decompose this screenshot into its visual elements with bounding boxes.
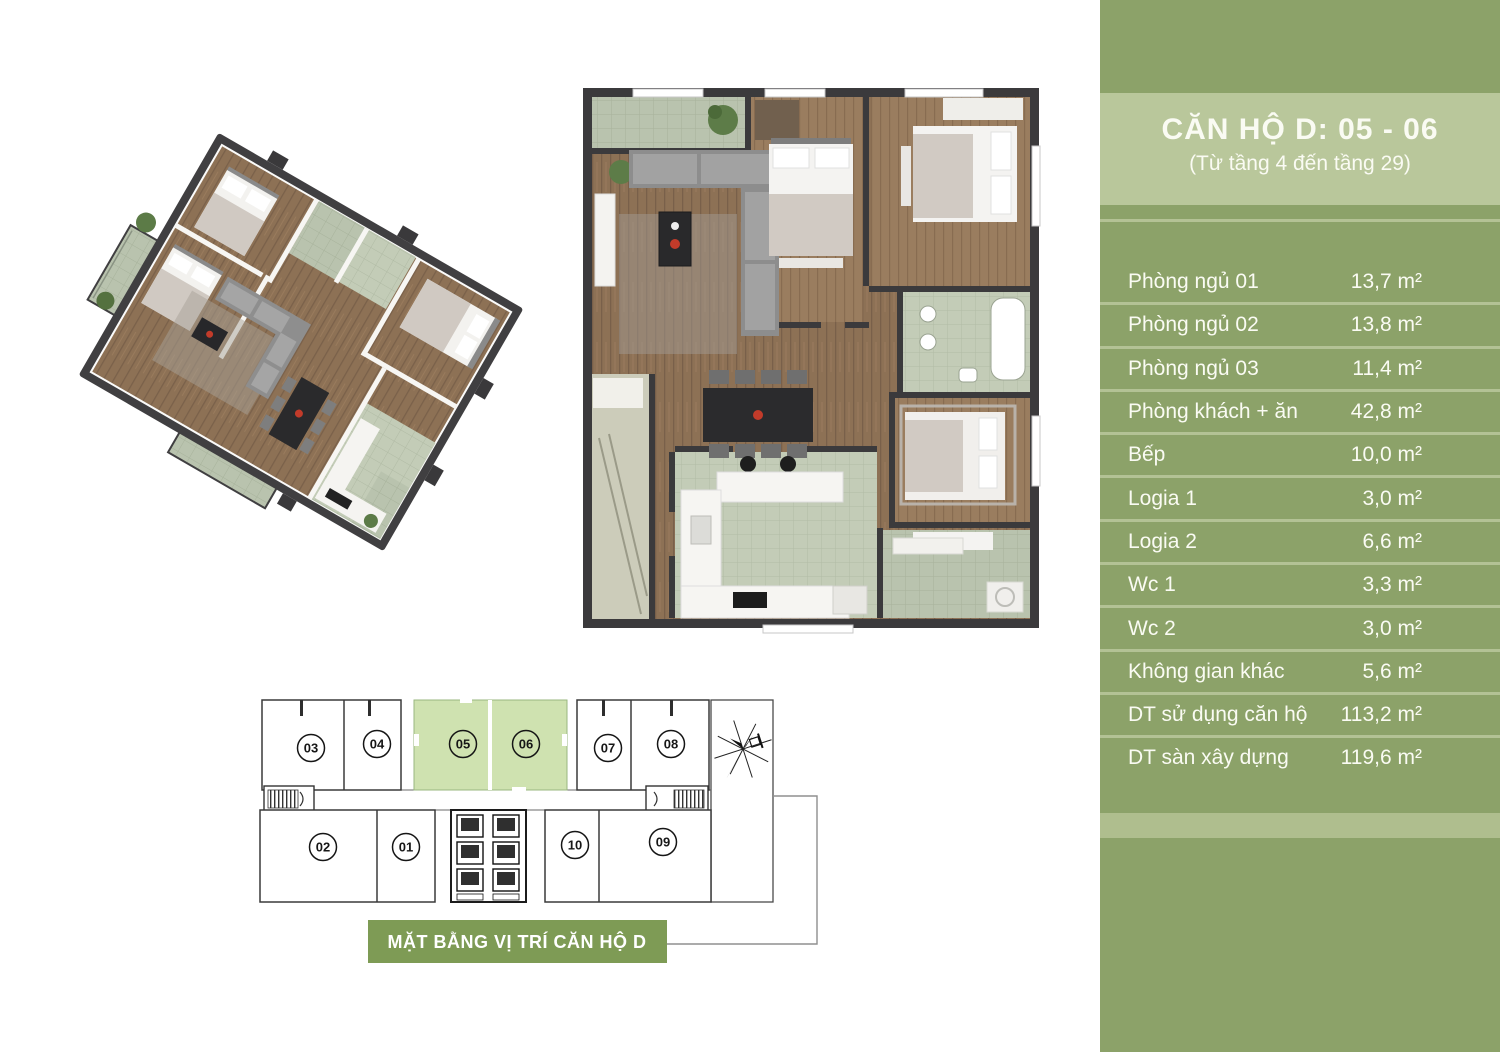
table-row: Phòng khách + ăn 42,8 m² [1100,389,1500,432]
info-panel: CĂN HỘ D: 05 - 06 (Từ tầng 4 đến tầng 29… [1100,0,1500,1052]
elevator-core [451,810,526,902]
svg-text:02: 02 [316,840,330,855]
row-label: Wc 2 [1128,617,1176,641]
table-row: Wc 1 3,3 m² [1100,562,1500,605]
page-title: CĂN HỘ D: 05 - 06 [1100,113,1500,147]
table-row: Logia 2 6,6 m² [1100,519,1500,562]
divider [1100,219,1500,222]
floor-plan-3d-isometric [35,85,575,625]
row-label: Phòng ngủ 03 [1128,357,1259,381]
building-edge-zone [711,700,773,902]
floor-plan-3d-top [583,86,1043,636]
row-value: 42,8 m² [1351,400,1422,424]
row-value: 13,8 m² [1351,313,1422,337]
row-value: 5,6 m² [1362,660,1422,684]
brochure-page: 03 04 05 06 07 08 02 01 10 09 [0,0,1500,1052]
row-label: Logia 2 [1128,530,1197,554]
row-value: 113,2 m² [1341,703,1422,727]
unit-block-10-09 [545,810,711,902]
location-banner: MẶT BẰNG VỊ TRÍ CĂN HỘ D [368,920,667,963]
table-row: DT sàn xây dựng 119,6 m² [1100,735,1500,778]
row-label: Logia 1 [1128,487,1197,511]
row-value: 11,4 m² [1352,357,1422,381]
unit-block-02-01 [260,810,435,902]
svg-text:05: 05 [456,737,470,752]
row-value: 10,0 m² [1351,443,1422,467]
stairs-icon [646,786,708,812]
row-value: 3,3 m² [1362,573,1422,597]
svg-text:08: 08 [664,737,678,752]
table-row: Không gian khác 5,6 m² [1100,649,1500,692]
svg-text:03: 03 [304,741,318,756]
row-label: Bếp [1128,443,1165,467]
row-label: Phòng ngủ 01 [1128,270,1259,294]
svg-text:10: 10 [568,838,582,853]
svg-text:09: 09 [656,835,670,850]
row-value: 13,7 m² [1351,270,1422,294]
bottom-accent-stripe [1100,813,1500,838]
row-label: Phòng khách + ăn [1128,400,1298,424]
row-label: DT sử dụng căn hộ [1128,703,1307,727]
svg-text:06: 06 [519,737,533,752]
table-row: DT sử dụng căn hộ 113,2 m² [1100,692,1500,735]
svg-text:07: 07 [601,741,615,756]
table-row: Phòng ngủ 03 11,4 m² [1100,346,1500,389]
table-row: Logia 1 3,0 m² [1100,475,1500,518]
row-label: Không gian khác [1128,660,1284,684]
table-row: Bếp 10,0 m² [1100,432,1500,475]
panel-header: CĂN HỘ D: 05 - 06 (Từ tầng 4 đến tầng 29… [1100,93,1500,205]
row-value: 3,0 m² [1362,617,1422,641]
table-row: Phòng ngủ 02 13,8 m² [1100,302,1500,345]
row-value: 6,6 m² [1362,530,1422,554]
table-row: Wc 2 3,0 m² [1100,605,1500,648]
unit-block-07-08 [577,700,709,790]
table-row: Phòng ngủ 01 13,7 m² [1100,262,1500,302]
svg-text:01: 01 [399,840,413,855]
row-label: Wc 1 [1128,573,1176,597]
row-label: DT sàn xây dựng [1128,746,1289,770]
floor-position-diagram: 03 04 05 06 07 08 02 01 10 09 [250,688,835,973]
iso-apartment [42,107,540,576]
area-table: Phòng ngủ 01 13,7 m² Phòng ngủ 02 13,8 m… [1100,262,1500,779]
row-value: 3,0 m² [1362,487,1422,511]
row-label: Phòng ngủ 02 [1128,313,1259,337]
page-subtitle: (Từ tầng 4 đến tầng 29) [1100,152,1500,176]
stairs-icon [264,786,314,812]
banner-label: MẶT BẰNG VỊ TRÍ CĂN HỘ D [388,931,647,952]
row-value: 119,6 m² [1341,746,1422,770]
svg-text:04: 04 [370,737,385,752]
